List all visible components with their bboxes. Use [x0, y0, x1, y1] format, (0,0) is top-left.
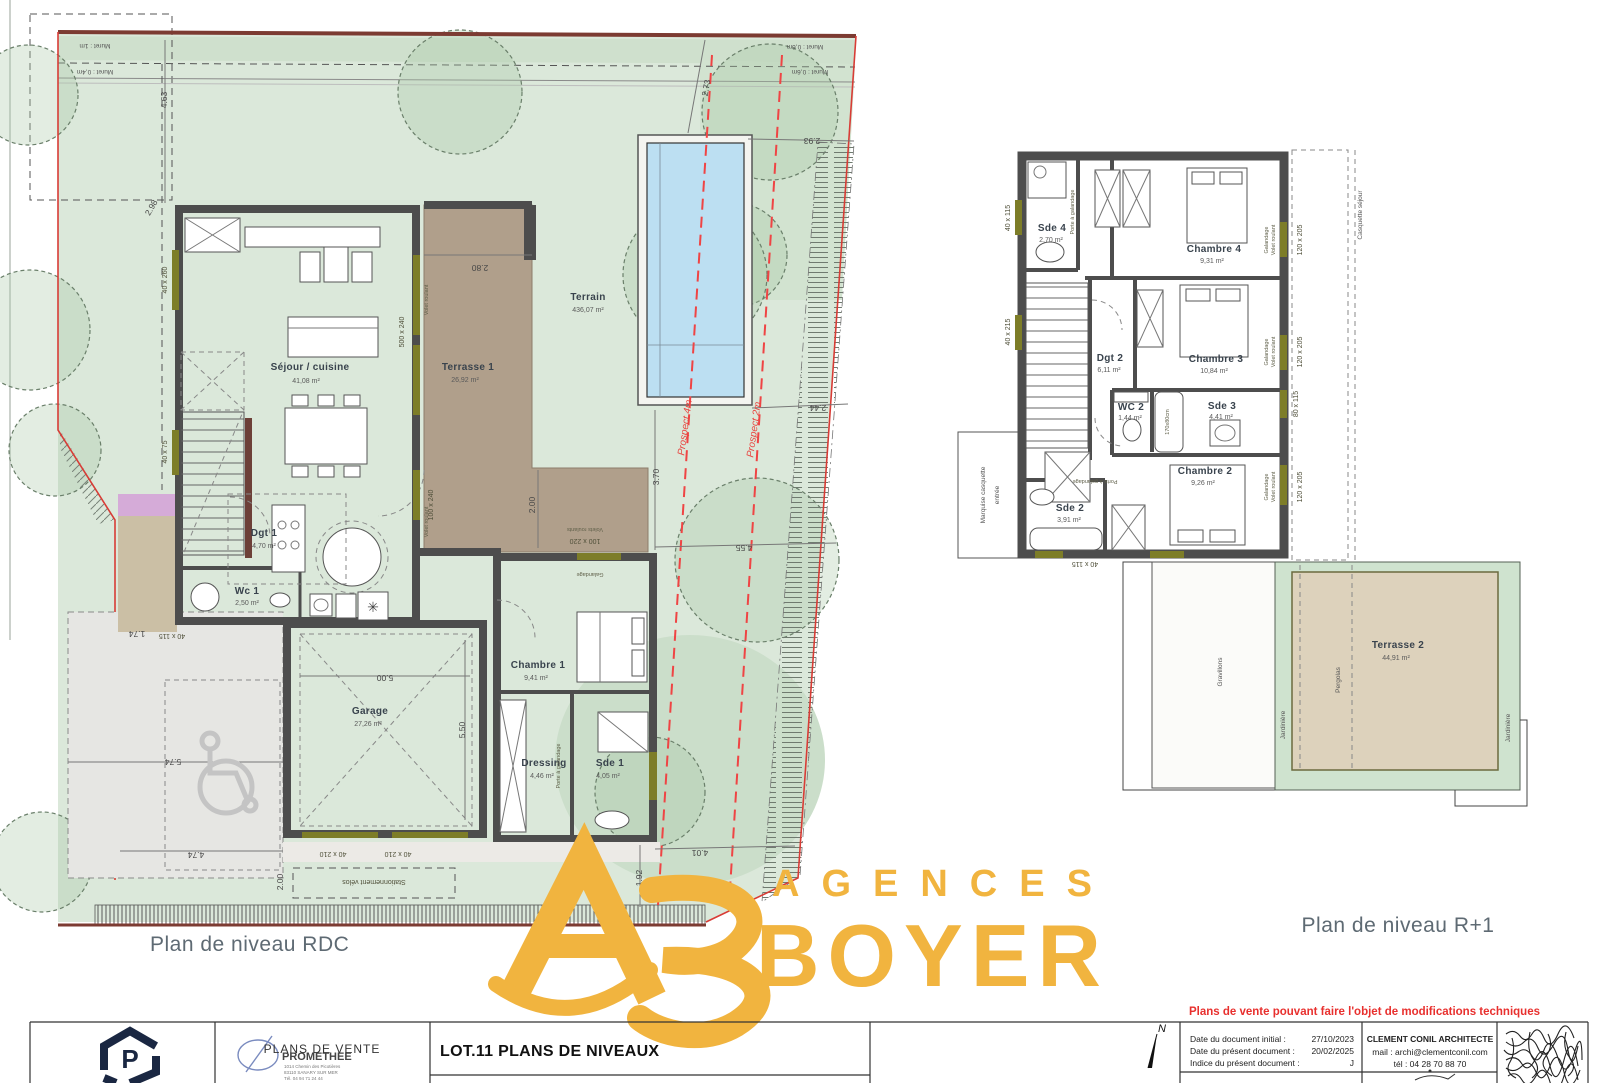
dim-455: 4.55 — [735, 543, 752, 553]
wc2-area: 1,44 m² — [1118, 415, 1142, 422]
galandage-2: Galandage — [1264, 339, 1270, 366]
muret-label-4: Muret : 0,6m — [792, 68, 828, 75]
garage-label: Garage — [352, 706, 388, 717]
gravillons-label: Gravillons — [1217, 657, 1224, 687]
disclaimer-text: Plans de vente pouvant faire l'objet de … — [1189, 1006, 1540, 1018]
jardiniere-left-label: Jardinière — [1280, 710, 1287, 739]
galandage-1: Galandage — [1264, 227, 1270, 254]
marquise-label-2: entrée — [994, 485, 1001, 504]
date-initial-value: 27/10/2023 — [1311, 1034, 1354, 1044]
pergolas-label: Pergolas — [1335, 666, 1342, 692]
galandage-label: Galandage — [577, 571, 604, 577]
r1-tag-120x205-c: 120 x 205 — [1297, 472, 1304, 503]
promethee-addr3: Tél. 04 94 71 24 44 — [284, 1076, 323, 1081]
sde1-area: 4,05 m² — [596, 773, 620, 780]
wc1-label: Wc 1 — [235, 586, 260, 597]
dim-474: 4.74 — [187, 850, 204, 860]
dgt1-label: Dgt 1 — [251, 528, 278, 539]
north-letter: N — [1158, 1023, 1166, 1035]
terrasse1-area: 26,92 m² — [451, 377, 479, 384]
indice-label: Indice du présent document : — [1190, 1058, 1300, 1068]
sde4-area: 2,70 m² — [1039, 237, 1063, 244]
tag-40x115: 40 x 115 — [159, 632, 185, 639]
entry-pad-pink — [118, 494, 177, 516]
dim-200b: 2.00 — [275, 873, 285, 890]
stamp-scribble — [1504, 1026, 1582, 1083]
architect-cell: CLEMENT CONIL ARCHITECTE mail : archi@cl… — [1367, 1034, 1494, 1080]
rdc-caption: Plan de niveau RDC — [150, 933, 349, 956]
tag-40x210-a: 40 x 210 — [319, 850, 346, 857]
muret-label-2: Muret : 0,4m — [77, 68, 113, 75]
sde3-label: Sde 3 — [1208, 401, 1236, 412]
dim-244: 2.44 — [809, 403, 826, 413]
velos-label: Stationnement vélos — [342, 878, 406, 885]
date-current-label: Date du présent document : — [1190, 1046, 1295, 1056]
chambre1-label: Chambre 1 — [511, 660, 566, 671]
terrasse1-label: Terrasse 1 — [442, 362, 494, 373]
volet-1: Volet roulant — [1271, 224, 1277, 255]
rdc-plan: ✳ T — [0, 0, 856, 956]
volet-2: Volet roulant — [1271, 336, 1277, 367]
brand-logo: AGENCES BOYER — [496, 856, 1114, 1035]
sde3-area: 4,41 m² — [1209, 414, 1233, 421]
r1-tag-40x115-b: 40 x 115 — [1072, 560, 1098, 567]
dim-200: 2.00 — [527, 496, 537, 513]
brand-word-boyer: BOYER — [756, 906, 1109, 1005]
sejour-label: Séjour / cuisine — [271, 362, 350, 373]
casquette-label: Casquette séjour — [1357, 190, 1364, 240]
promethee-addr1: 1014 Chemin des Picotières — [284, 1064, 341, 1069]
volets-label: Volets roulants — [567, 526, 603, 532]
dim-280: 2.80 — [471, 263, 488, 273]
sde2-area: 3,91 m² — [1057, 517, 1081, 524]
doc-title: LOT.11 PLANS DE NIVEAUX — [440, 1043, 659, 1060]
r1-tag-120x205-a: 120 x 205 — [1297, 225, 1304, 256]
title-block: Plans de vente pouvant faire l'objet de … — [30, 1006, 1588, 1083]
r1-tag-120x205-b: 120 x 205 — [1297, 337, 1304, 368]
chambre3-label: Chambre 3 — [1189, 354, 1244, 365]
wc1-area: 2,50 m² — [235, 600, 259, 607]
r1-plan: Sde 4 2,70 m² Chambre 4 9,31 m² Dgt 2 6,… — [958, 150, 1527, 937]
galandage-3: Galandage — [1264, 474, 1270, 501]
terrain-label: Terrain — [570, 292, 605, 303]
date-initial-label: Date du document initial : — [1190, 1034, 1286, 1044]
chambre2-label: Chambre 2 — [1178, 466, 1233, 477]
tub-size-label: 170x80cm — [1165, 409, 1171, 435]
architect-mail: mail : archi@clementconil.com — [1372, 1047, 1487, 1057]
entry-pad-tan — [118, 516, 177, 632]
garage-area: 27,26 m² — [354, 721, 382, 728]
jardiniere-right-label: Jardinière — [1505, 713, 1512, 742]
dim-500: 5.00 — [376, 673, 393, 683]
muret-label-3: Muret : 0,6m — [787, 43, 823, 50]
volet-3: Volet roulant — [1271, 471, 1277, 502]
terrasse2-block — [1123, 562, 1527, 806]
tag-500x240: 500 x 240 — [399, 317, 406, 348]
date-current-value: 20/02/2025 — [1311, 1046, 1354, 1056]
dim-293: 2.93 — [803, 136, 820, 146]
porte-galandage-label: Porte à galandage — [556, 744, 562, 789]
terrasse2-label: Terrasse 2 — [1372, 640, 1424, 651]
r1-tag-80x115: 80 x 115 — [1293, 391, 1300, 417]
promethee-addr2: 83110 SANARY SUR MER — [284, 1070, 339, 1075]
marquise-label-1: Marquise casquette — [980, 466, 987, 523]
architect-name: CLEMENT CONIL ARCHITECTE — [1367, 1034, 1494, 1044]
north-arrow-icon: N — [1148, 1023, 1166, 1068]
dim-174: 1.74 — [128, 629, 145, 639]
dim-463: 4.63 — [159, 91, 169, 108]
chambre1-area: 9,41 m² — [524, 675, 548, 682]
dim-370: 3.70 — [651, 468, 661, 485]
tag-40x260: 40 x 260 — [162, 266, 169, 293]
marquise-outline — [958, 432, 1020, 558]
muret-label-1: Muret : 1m — [79, 42, 110, 49]
pool — [638, 135, 752, 405]
dgt2-label: Dgt 2 — [1097, 353, 1124, 364]
r1-house — [1015, 156, 1287, 558]
brand-word-agences: AGENCES — [772, 863, 1114, 905]
chambre3-area: 10,84 m² — [1200, 368, 1228, 375]
tag-40x75: 40 x 75 — [162, 440, 169, 463]
dates-table: Date du document initial : 27/10/2023 Da… — [1190, 1034, 1354, 1068]
wc2-label: WC 2 — [1118, 402, 1144, 413]
dgt1-area: 4,70 m² — [252, 543, 276, 550]
porte-galandage-r1-a: Porte à galandage — [1070, 190, 1076, 235]
chambre2-area: 9,26 m² — [1191, 480, 1215, 487]
plan-sheet: ✳ T — [0, 0, 1600, 1083]
architect-signature — [1415, 1074, 1455, 1080]
sde2-label: Sde 2 — [1056, 503, 1084, 514]
sde4-label: Sde 4 — [1038, 223, 1066, 234]
doc-type: PLANS DE VENTE — [264, 1042, 381, 1056]
r1-window-sublabels: Galandage Volet roulant Galandage Volet … — [1264, 224, 1277, 502]
dim-550: 5.50 — [457, 721, 467, 738]
dressing-area: 4,46 m² — [530, 773, 554, 780]
porte-galandage-r1-b: Porte à galandage — [1073, 478, 1118, 484]
r1-caption: Plan de niveau R+1 — [1302, 914, 1495, 937]
dgt2-area: 6,11 m² — [1097, 367, 1121, 374]
volet-label-1: Volet roulant — [424, 284, 430, 315]
volet-label-2: Volet roulant — [424, 506, 430, 537]
chambre4-area: 9,31 m² — [1200, 258, 1224, 265]
r1-tag-40x115: 40 x 115 — [1005, 205, 1012, 231]
tag-40x210-b: 40 x 210 — [384, 850, 411, 857]
fridge-snowflake-icon: ✳ — [367, 599, 379, 615]
sejour-area: 41,08 m² — [292, 378, 320, 385]
chambre4-label: Chambre 4 — [1187, 244, 1242, 255]
architect-tel: tél : 04 28 70 88 70 — [1394, 1059, 1467, 1069]
dim-401: 4.01 — [691, 848, 708, 858]
hexagon-logo-letter: P — [121, 1044, 138, 1074]
indice-value: J — [1350, 1058, 1354, 1068]
dim-574: 5.74 — [164, 757, 181, 767]
terrain-area: 436,07 m² — [572, 307, 604, 314]
r1-tag-40x215: 40 x 215 — [1005, 318, 1012, 345]
drawing-canvas: ✳ T — [0, 0, 1600, 1083]
sde1-label: Sde 1 — [596, 758, 624, 769]
driveway — [68, 612, 283, 878]
terrasse2-area: 44,91 m² — [1382, 655, 1410, 662]
tag-100x220: 100 x 220 — [570, 537, 601, 544]
